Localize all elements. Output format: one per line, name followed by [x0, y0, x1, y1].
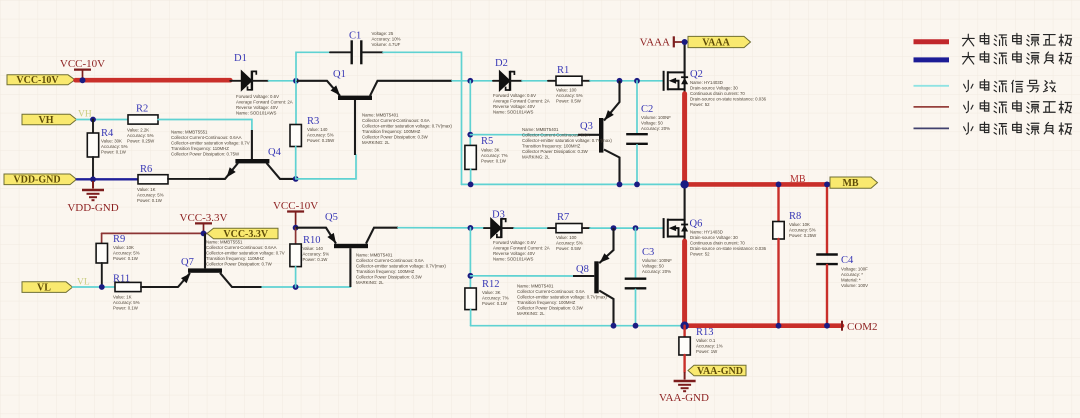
svg-text:C1: C1: [349, 31, 361, 42]
svg-text:VAAA: VAAA: [702, 37, 730, 48]
svg-text:D1: D1: [234, 53, 247, 64]
svg-text:Q4: Q4: [268, 147, 282, 158]
svg-text:R7: R7: [557, 212, 569, 223]
svg-text:R8: R8: [789, 211, 801, 222]
svg-text:VH: VH: [39, 115, 54, 126]
svg-text:R11: R11: [113, 274, 130, 285]
svg-text:VH: VH: [78, 110, 92, 120]
svg-text:Q6: Q6: [690, 219, 703, 230]
svg-text:VCC-3.3V: VCC-3.3V: [180, 212, 228, 224]
svg-text:R1: R1: [557, 65, 569, 76]
svg-text:VDD-GND: VDD-GND: [13, 175, 60, 186]
svg-text:VCC-10V: VCC-10V: [273, 200, 318, 212]
svg-text:R2: R2: [136, 104, 148, 115]
svg-text:VAA-GND: VAA-GND: [697, 366, 743, 377]
svg-text:D3: D3: [492, 210, 505, 221]
svg-text:R9: R9: [113, 234, 125, 245]
svg-text:Q8: Q8: [576, 264, 589, 275]
svg-text:VL: VL: [77, 278, 90, 288]
svg-text:Q2: Q2: [690, 69, 703, 80]
svg-text:VCC-10V: VCC-10V: [16, 75, 59, 86]
svg-text:VCC-3.3V: VCC-3.3V: [223, 229, 268, 240]
svg-text:VCC-10V: VCC-10V: [60, 58, 105, 70]
svg-text:C3: C3: [642, 247, 654, 258]
svg-text:R5: R5: [481, 136, 493, 147]
svg-text:VDD-GND: VDD-GND: [67, 202, 118, 214]
svg-text:VAAA: VAAA: [640, 37, 670, 49]
svg-text:D2: D2: [495, 58, 508, 69]
svg-text:MB: MB: [790, 174, 806, 185]
svg-text:VL: VL: [37, 283, 51, 294]
svg-text:COM2: COM2: [847, 321, 878, 333]
svg-text:R10: R10: [303, 235, 321, 246]
svg-text:C2: C2: [641, 104, 653, 115]
svg-text:R6: R6: [140, 164, 152, 175]
svg-text:R13: R13: [696, 327, 714, 338]
svg-text:MB: MB: [842, 178, 858, 189]
svg-text:Q5: Q5: [325, 212, 338, 223]
svg-text:Q7: Q7: [181, 257, 194, 268]
svg-text:Q3: Q3: [580, 121, 593, 132]
svg-text:Q1: Q1: [333, 69, 346, 80]
svg-text:VAA-GND: VAA-GND: [659, 392, 709, 404]
svg-text:R12: R12: [482, 279, 500, 290]
svg-text:R3: R3: [307, 116, 319, 127]
svg-text:C4: C4: [841, 255, 854, 266]
